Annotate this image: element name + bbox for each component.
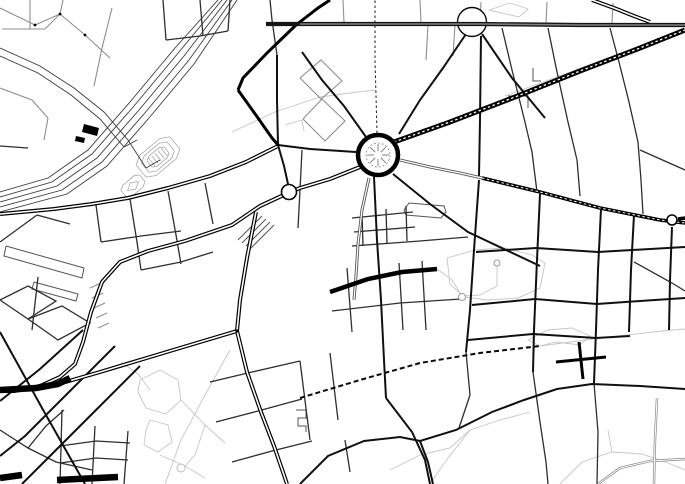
junction-dots [34,13,280,385]
motorway-segments [0,378,118,480]
avenue-casing-inner [0,0,650,484]
thick-stub-road [330,269,437,292]
station-buildings [75,124,99,143]
map-view [0,0,685,484]
light-streets [0,0,613,328]
gray-casing2-outer [598,398,685,484]
map-canvas[interactable] [0,0,685,484]
park-paths [121,3,685,484]
dashed-road [300,346,540,398]
artery-east [482,178,685,223]
gray-casing2-inner [598,398,685,484]
dotted-streets [375,0,377,133]
medium-streets [0,34,685,484]
avenue-casing-outer [0,0,650,484]
